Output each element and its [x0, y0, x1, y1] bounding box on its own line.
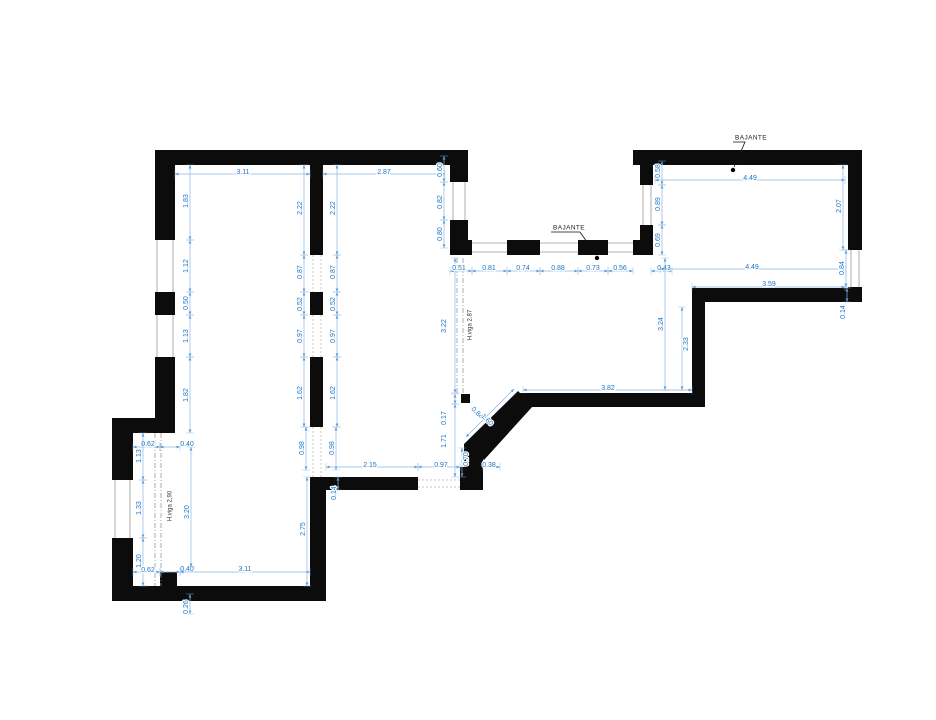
wall-segment: [112, 538, 133, 586]
bajante-dot: [595, 256, 599, 260]
wall-segment: [112, 418, 175, 433]
opening: [313, 255, 321, 292]
window: [157, 240, 173, 292]
dimension-label: 0.14: [331, 486, 338, 500]
dimension-label: 0.89: [655, 197, 662, 211]
dimension-label: 0.43: [657, 265, 671, 272]
dimension-label: 3.11: [236, 169, 249, 176]
dimension-label: 0.73: [586, 265, 600, 272]
dimension-label: 0.51: [452, 265, 466, 272]
dimension-label: 4.49: [745, 264, 759, 271]
dimension-layer: 3.112.870.600.820.801.831.120.501.131.82…: [133, 156, 851, 614]
wall-segment: [310, 477, 326, 586]
wall-segment: [155, 292, 175, 315]
dimension-label: 2.75: [300, 522, 307, 536]
beam-height-label: H.viga 2,90: [168, 490, 174, 521]
dimension-label: 0.69: [655, 233, 662, 247]
wall-segment: [450, 240, 472, 255]
dimension-label: 1.12: [183, 259, 190, 273]
wall-segment: [692, 302, 705, 407]
dimension-label: 1.82: [183, 388, 190, 402]
wall-segment: [633, 240, 653, 255]
window: [540, 243, 578, 252]
dimension-label: 2.87: [377, 169, 391, 176]
dimension-label: 2.07: [836, 199, 843, 213]
window: [851, 250, 859, 287]
wall-segment: [326, 477, 418, 490]
wall-segment: [155, 165, 175, 240]
dimension-label: 0.58: [655, 164, 662, 178]
dimension-label: 0.97: [297, 329, 304, 343]
dimension-label: 0.97: [330, 329, 337, 343]
dimension-label: 2.33: [683, 337, 690, 351]
dimension-label: 0.56: [613, 265, 627, 272]
dimension-label: 0.74: [516, 265, 530, 272]
opening: [313, 427, 321, 477]
dimension-label: 3.59: [762, 281, 776, 288]
dimension-label: 0.87: [330, 265, 337, 279]
dimension-label: 0.81: [482, 265, 496, 272]
floor-plan-page: 3.112.870.600.820.801.831.120.501.131.82…: [0, 0, 936, 720]
dimension-label: 1.71: [441, 434, 448, 448]
dimension-label: 0.82: [437, 195, 444, 209]
dimension-label: 0.52: [330, 297, 337, 311]
floor-plan-canvas: 3.112.870.600.820.801.831.120.501.131.82…: [0, 0, 936, 720]
dimension-label: 3.24: [658, 317, 665, 331]
dimension-label: 0.70: [463, 452, 470, 466]
wall-segment: [640, 225, 653, 240]
wall-segment: [460, 467, 483, 490]
wall-segment: [507, 240, 540, 255]
dimension-label: 0.87: [297, 265, 304, 279]
wall-segment: [112, 586, 326, 601]
walls: [112, 150, 862, 601]
dimension-label: 3.82: [601, 385, 615, 392]
dimension-label: 2.22: [297, 201, 304, 215]
dimension-label: 0.52: [297, 297, 304, 311]
wall-segment: [310, 357, 323, 427]
dimension-label: 0.17: [441, 411, 448, 425]
beam-lines: [155, 258, 463, 586]
beam-height-label: H.viga 2.87: [468, 309, 474, 340]
dimension-label: 2.15: [363, 462, 377, 469]
dimension-label: 1.13: [136, 449, 143, 463]
opening: [313, 315, 321, 357]
dimension-label: 0.88: [551, 265, 565, 272]
dimension-label: 0.80: [437, 227, 444, 241]
dimension-label: 1.13: [183, 329, 190, 343]
dimension-label: 1.20: [136, 554, 143, 568]
window: [453, 182, 465, 220]
wall-segment: [160, 572, 177, 586]
dimension-label: 2.22: [330, 201, 337, 215]
dimension-label: 0.26: [183, 600, 190, 614]
dimension-label: 0.98: [329, 441, 336, 455]
dimension-label: 3.11: [238, 566, 251, 573]
beam-line: [457, 258, 463, 393]
wall-segment: [310, 165, 323, 255]
dimension-label: 0.97: [434, 462, 448, 469]
wall-segment: [848, 165, 862, 250]
dimension-label: 1.83: [183, 194, 190, 208]
dimension-label: 0.14: [840, 305, 847, 319]
window: [608, 243, 633, 252]
window: [643, 185, 651, 225]
bajante-label: BAJANTE: [735, 135, 767, 142]
dimension-label: 1.62: [297, 386, 304, 400]
dimension-label: 0.84: [839, 261, 846, 275]
dimension-label: 0.62: [141, 567, 155, 574]
windows: [115, 182, 859, 538]
window: [472, 243, 507, 252]
wall-segment: [633, 150, 862, 165]
window: [115, 480, 130, 538]
bajante-dot: [731, 168, 735, 172]
dimension-label: 1.33: [136, 501, 143, 515]
wall-segment: [450, 220, 468, 240]
wall-segment: [578, 240, 608, 255]
bajante-label: BAJANTE: [553, 225, 585, 232]
wall-segment: [692, 288, 862, 302]
dimension-label: 1.62: [330, 386, 337, 400]
wall-segment: [310, 292, 323, 315]
dimension-label: 3.22: [441, 319, 448, 333]
opening: [418, 480, 460, 487]
dimension-label: 0.98: [299, 441, 306, 455]
column: [461, 394, 470, 403]
dimension-label: 3.20: [184, 505, 191, 519]
wall-segment: [112, 433, 133, 480]
wall-segment: [450, 165, 468, 182]
dimension-label: 0.60: [437, 163, 444, 177]
window: [157, 315, 173, 357]
wall-segment: [520, 393, 705, 407]
dimension-label: 0.50: [183, 296, 190, 310]
dimension-label: 4.49: [743, 175, 757, 182]
wall-segment: [640, 165, 653, 185]
wall-segment: [155, 150, 468, 165]
beam-line: [155, 433, 161, 586]
dimension-label: 0.38: [482, 462, 496, 469]
